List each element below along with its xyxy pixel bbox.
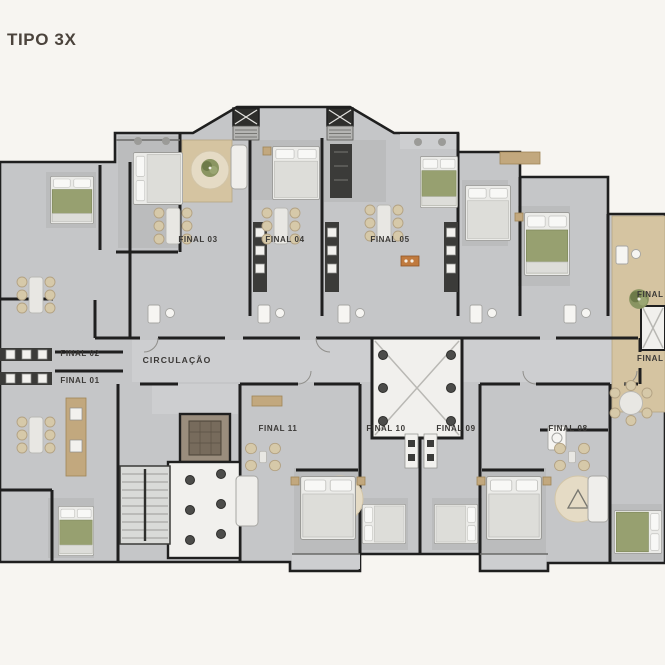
bed xyxy=(58,506,93,555)
unit-label-final-09: FINAL 09 xyxy=(436,424,475,433)
dining-set xyxy=(17,277,55,313)
bed xyxy=(272,146,319,199)
bed xyxy=(434,504,477,543)
bed xyxy=(420,156,457,207)
elevator-hall xyxy=(168,462,240,558)
unit-label-final-03: FINAL 03 xyxy=(178,235,217,244)
sofa xyxy=(588,476,608,522)
unit-label-final-01: FINAL 01 xyxy=(60,376,99,385)
stairs xyxy=(120,466,170,544)
central-shaft xyxy=(372,338,462,438)
floor-plan: FINAL 02 FINAL 01 FINAL 03 FINAL 04 FINA… xyxy=(0,0,665,665)
unit-label-final-11: FINAL 11 xyxy=(259,424,298,433)
bed xyxy=(614,510,661,553)
bed xyxy=(362,504,405,543)
unit-label-final-04: FINAL 04 xyxy=(265,235,304,244)
vent-shaft-left-icon xyxy=(233,108,259,140)
bed xyxy=(524,213,569,276)
dining-set xyxy=(17,417,55,453)
bed xyxy=(301,477,356,540)
service-shaft xyxy=(641,306,665,350)
unit-label-final-07: FINAL 07 xyxy=(637,354,665,363)
bed xyxy=(133,153,182,205)
elevator-shaft xyxy=(180,414,230,462)
circulation-label: CIRCULAÇÃO xyxy=(143,355,212,365)
vent-shaft-right-icon xyxy=(327,108,353,140)
sofa xyxy=(231,145,247,189)
unit-label-final-08: FINAL 08 xyxy=(548,424,587,433)
bed xyxy=(465,185,510,240)
bed xyxy=(50,176,93,223)
unit-label-final-05: FINAL 05 xyxy=(370,235,409,244)
sofa xyxy=(236,476,258,526)
unit-label-final-10: FINAL 10 xyxy=(366,424,405,433)
plant-icon xyxy=(201,159,219,177)
unit-label-final-06: FINAL 06 xyxy=(637,290,665,299)
unit-label-final-02: FINAL 02 xyxy=(60,349,99,358)
bed xyxy=(487,477,542,540)
